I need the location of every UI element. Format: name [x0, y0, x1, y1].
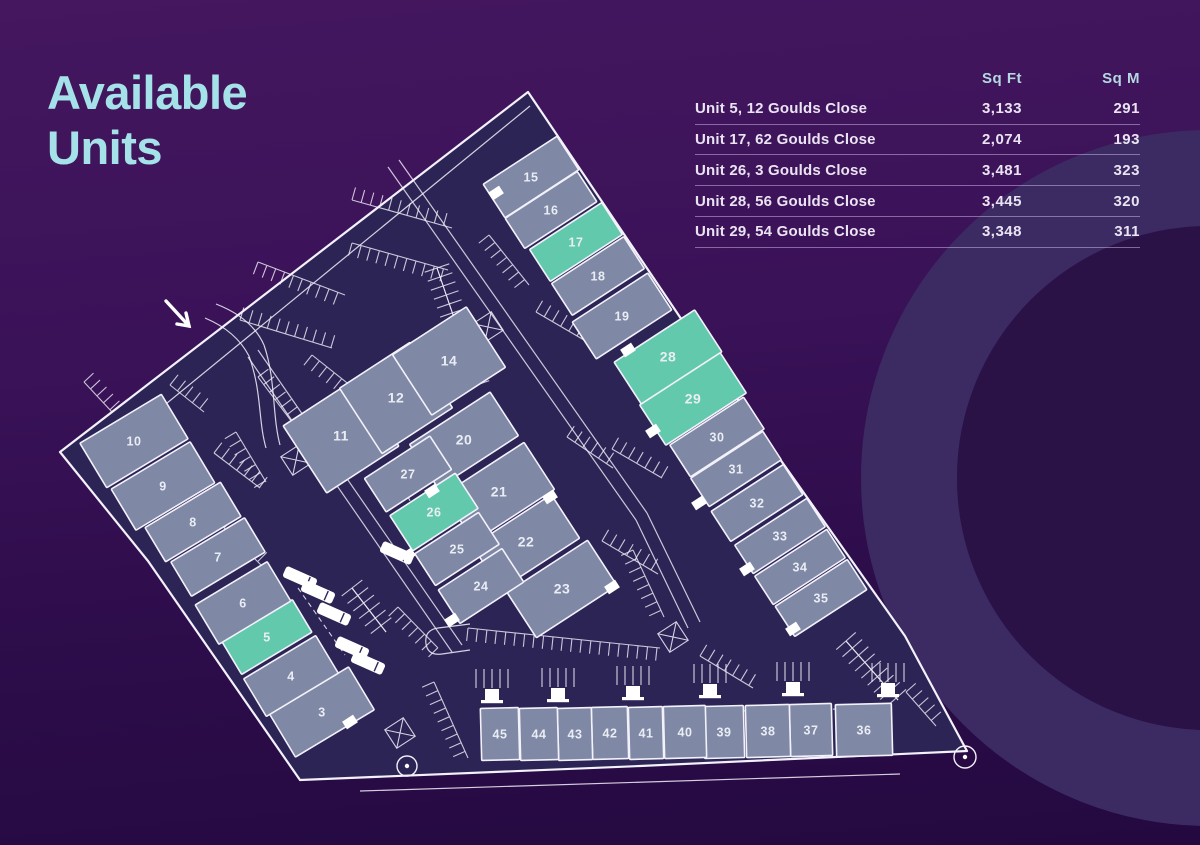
unit-9-label: 9: [159, 480, 166, 494]
unit-41-label: 41: [639, 727, 654, 741]
unit-address: Unit 5, 12 Goulds Close: [695, 100, 910, 117]
unit-43-label: 43: [568, 728, 583, 742]
unit-sqm: 311: [1022, 223, 1140, 240]
unit-24-label: 24: [474, 580, 489, 594]
boundary-line: [360, 774, 900, 791]
unit-21-label: 21: [491, 484, 508, 500]
table-row-unit-28: Unit 28, 56 Goulds Close 3,445 320: [695, 186, 1140, 217]
entrance-arrow-icon: [166, 301, 189, 326]
page: Available Units 345678910111214151617181…: [0, 0, 1200, 845]
unit-36-label: 36: [857, 724, 872, 738]
unit-34-label: 34: [793, 561, 808, 575]
unit-7-label: 7: [214, 551, 221, 565]
unit-31-label: 31: [729, 463, 744, 477]
unit-45-label: 45: [493, 728, 508, 742]
unit-12-label: 12: [388, 390, 405, 406]
unit-10-label: 10: [127, 435, 142, 449]
table-header-row: Sq Ft Sq M: [695, 64, 1140, 94]
unit-8-label: 8: [189, 516, 196, 530]
unit-4-label: 4: [287, 670, 294, 684]
unit-40-label: 40: [678, 726, 693, 740]
unit-sqft: 2,074: [910, 131, 1022, 148]
column-header-sqm: Sq M: [1022, 70, 1140, 87]
unit-29-label: 29: [685, 391, 702, 407]
unit-address: Unit 17, 62 Goulds Close: [695, 131, 910, 148]
unit-22-label: 22: [518, 534, 535, 550]
unit-sqft: 3,133: [910, 100, 1022, 117]
table-row-unit-5: Unit 5, 12 Goulds Close 3,133 291: [695, 94, 1140, 125]
unit-26-label: 26: [427, 506, 442, 520]
unit-42-label: 42: [603, 727, 618, 741]
unit-33-label: 33: [773, 530, 788, 544]
unit-39-label: 39: [717, 726, 732, 740]
unit-18-label: 18: [591, 270, 606, 284]
page-title: Available Units: [47, 66, 247, 176]
unit-32-label: 32: [750, 497, 765, 511]
unit-35-label: 35: [814, 592, 829, 606]
unit-5-label: 5: [263, 631, 270, 645]
unit-sqm: 320: [1022, 193, 1140, 210]
unit-sqft: 3,445: [910, 193, 1022, 210]
unit-16-label: 16: [544, 204, 559, 218]
unit-17-label: 17: [569, 236, 584, 250]
page-title-line1: Available: [47, 66, 247, 119]
unit-sqm: 193: [1022, 131, 1140, 148]
page-title-line2: Units: [47, 121, 162, 174]
unit-sqm: 323: [1022, 162, 1140, 179]
unit-19-label: 19: [615, 310, 630, 324]
parking-row: [84, 373, 119, 412]
unit-6-label: 6: [239, 597, 246, 611]
unit-sqft: 3,348: [910, 223, 1022, 240]
table-row-unit-29: Unit 29, 54 Goulds Close 3,348 311: [695, 217, 1140, 248]
unit-address: Unit 29, 54 Goulds Close: [695, 223, 910, 240]
unit-27-label: 27: [401, 468, 416, 482]
unit-14-label: 14: [441, 353, 458, 369]
column-header-sqft: Sq Ft: [910, 70, 1022, 87]
unit-3-label: 3: [318, 706, 325, 720]
unit-15-label: 15: [524, 171, 539, 185]
unit-25-label: 25: [450, 543, 465, 557]
table-row-unit-17: Unit 17, 62 Goulds Close 2,074 193: [695, 125, 1140, 156]
unit-20-label: 20: [456, 432, 473, 448]
unit-37-label: 37: [804, 724, 819, 738]
table-row-unit-26: Unit 26, 3 Goulds Close 3,481 323: [695, 155, 1140, 186]
available-units-table: Sq Ft Sq M Unit 5, 12 Goulds Close 3,133…: [695, 64, 1140, 248]
unit-address: Unit 28, 56 Goulds Close: [695, 193, 910, 210]
unit-sqft: 3,481: [910, 162, 1022, 179]
unit-28-label: 28: [660, 349, 677, 365]
unit-23-label: 23: [554, 581, 571, 597]
unit-address: Unit 26, 3 Goulds Close: [695, 162, 910, 179]
unit-30-label: 30: [710, 431, 725, 445]
unit-38-label: 38: [761, 725, 776, 739]
unit-44-label: 44: [532, 728, 547, 742]
unit-11-label: 11: [333, 428, 349, 444]
unit-sqm: 291: [1022, 100, 1140, 117]
